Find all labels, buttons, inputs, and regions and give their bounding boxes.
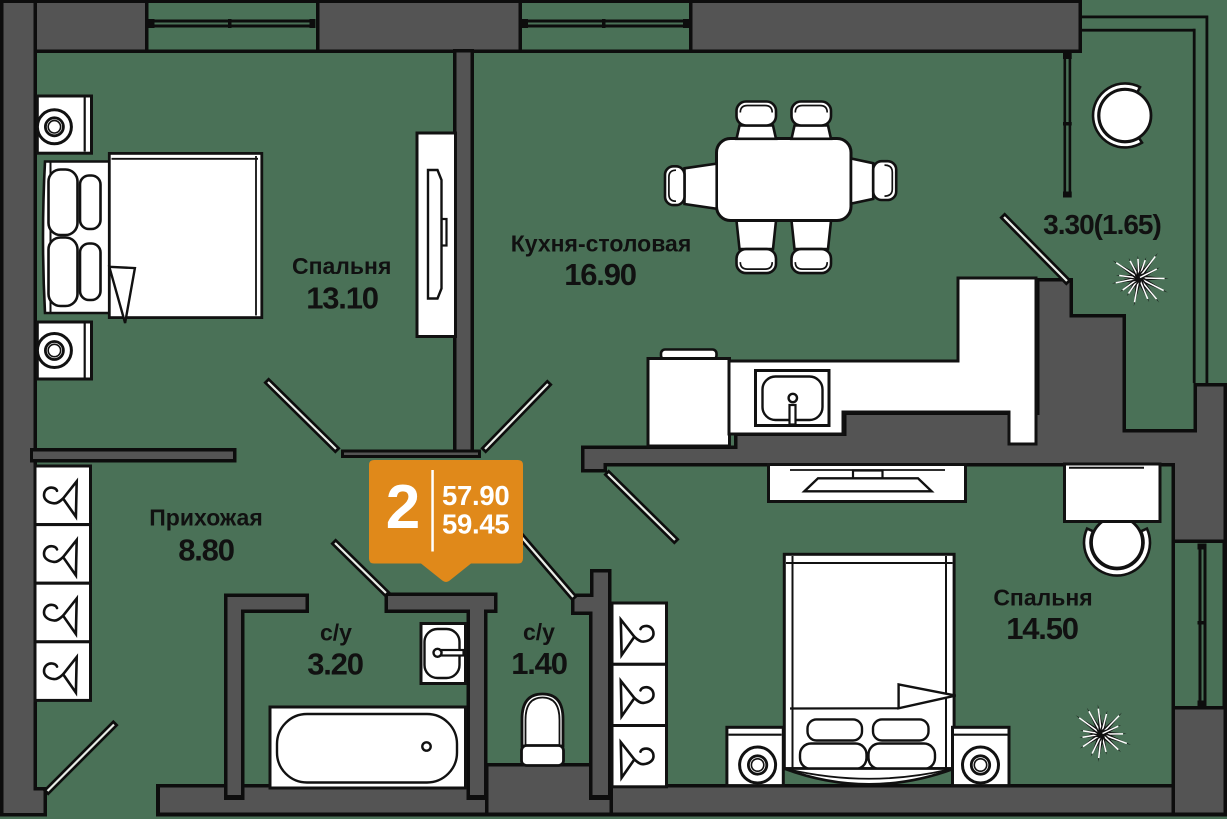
svg-text:с/у: с/у	[320, 620, 352, 646]
svg-text:13.10: 13.10	[306, 281, 378, 316]
svg-text:14.50: 14.50	[1006, 611, 1078, 646]
svg-text:Спальня: Спальня	[292, 253, 391, 279]
svg-text:59.45: 59.45	[442, 509, 509, 540]
svg-text:3.20: 3.20	[307, 647, 363, 682]
svg-text:2: 2	[386, 473, 420, 542]
svg-text:с/у: с/у	[523, 619, 555, 645]
svg-text:Прихожая: Прихожая	[149, 505, 262, 531]
svg-text:8.80: 8.80	[178, 533, 234, 568]
svg-text:16.90: 16.90	[564, 257, 636, 292]
svg-text:Кухня-столовая: Кухня-столовая	[511, 231, 692, 257]
svg-text:3.30(1.65): 3.30(1.65)	[1043, 209, 1161, 240]
svg-text:57.90: 57.90	[442, 480, 509, 511]
svg-text:Спальня: Спальня	[993, 585, 1092, 611]
svg-text:1.40: 1.40	[511, 646, 567, 681]
